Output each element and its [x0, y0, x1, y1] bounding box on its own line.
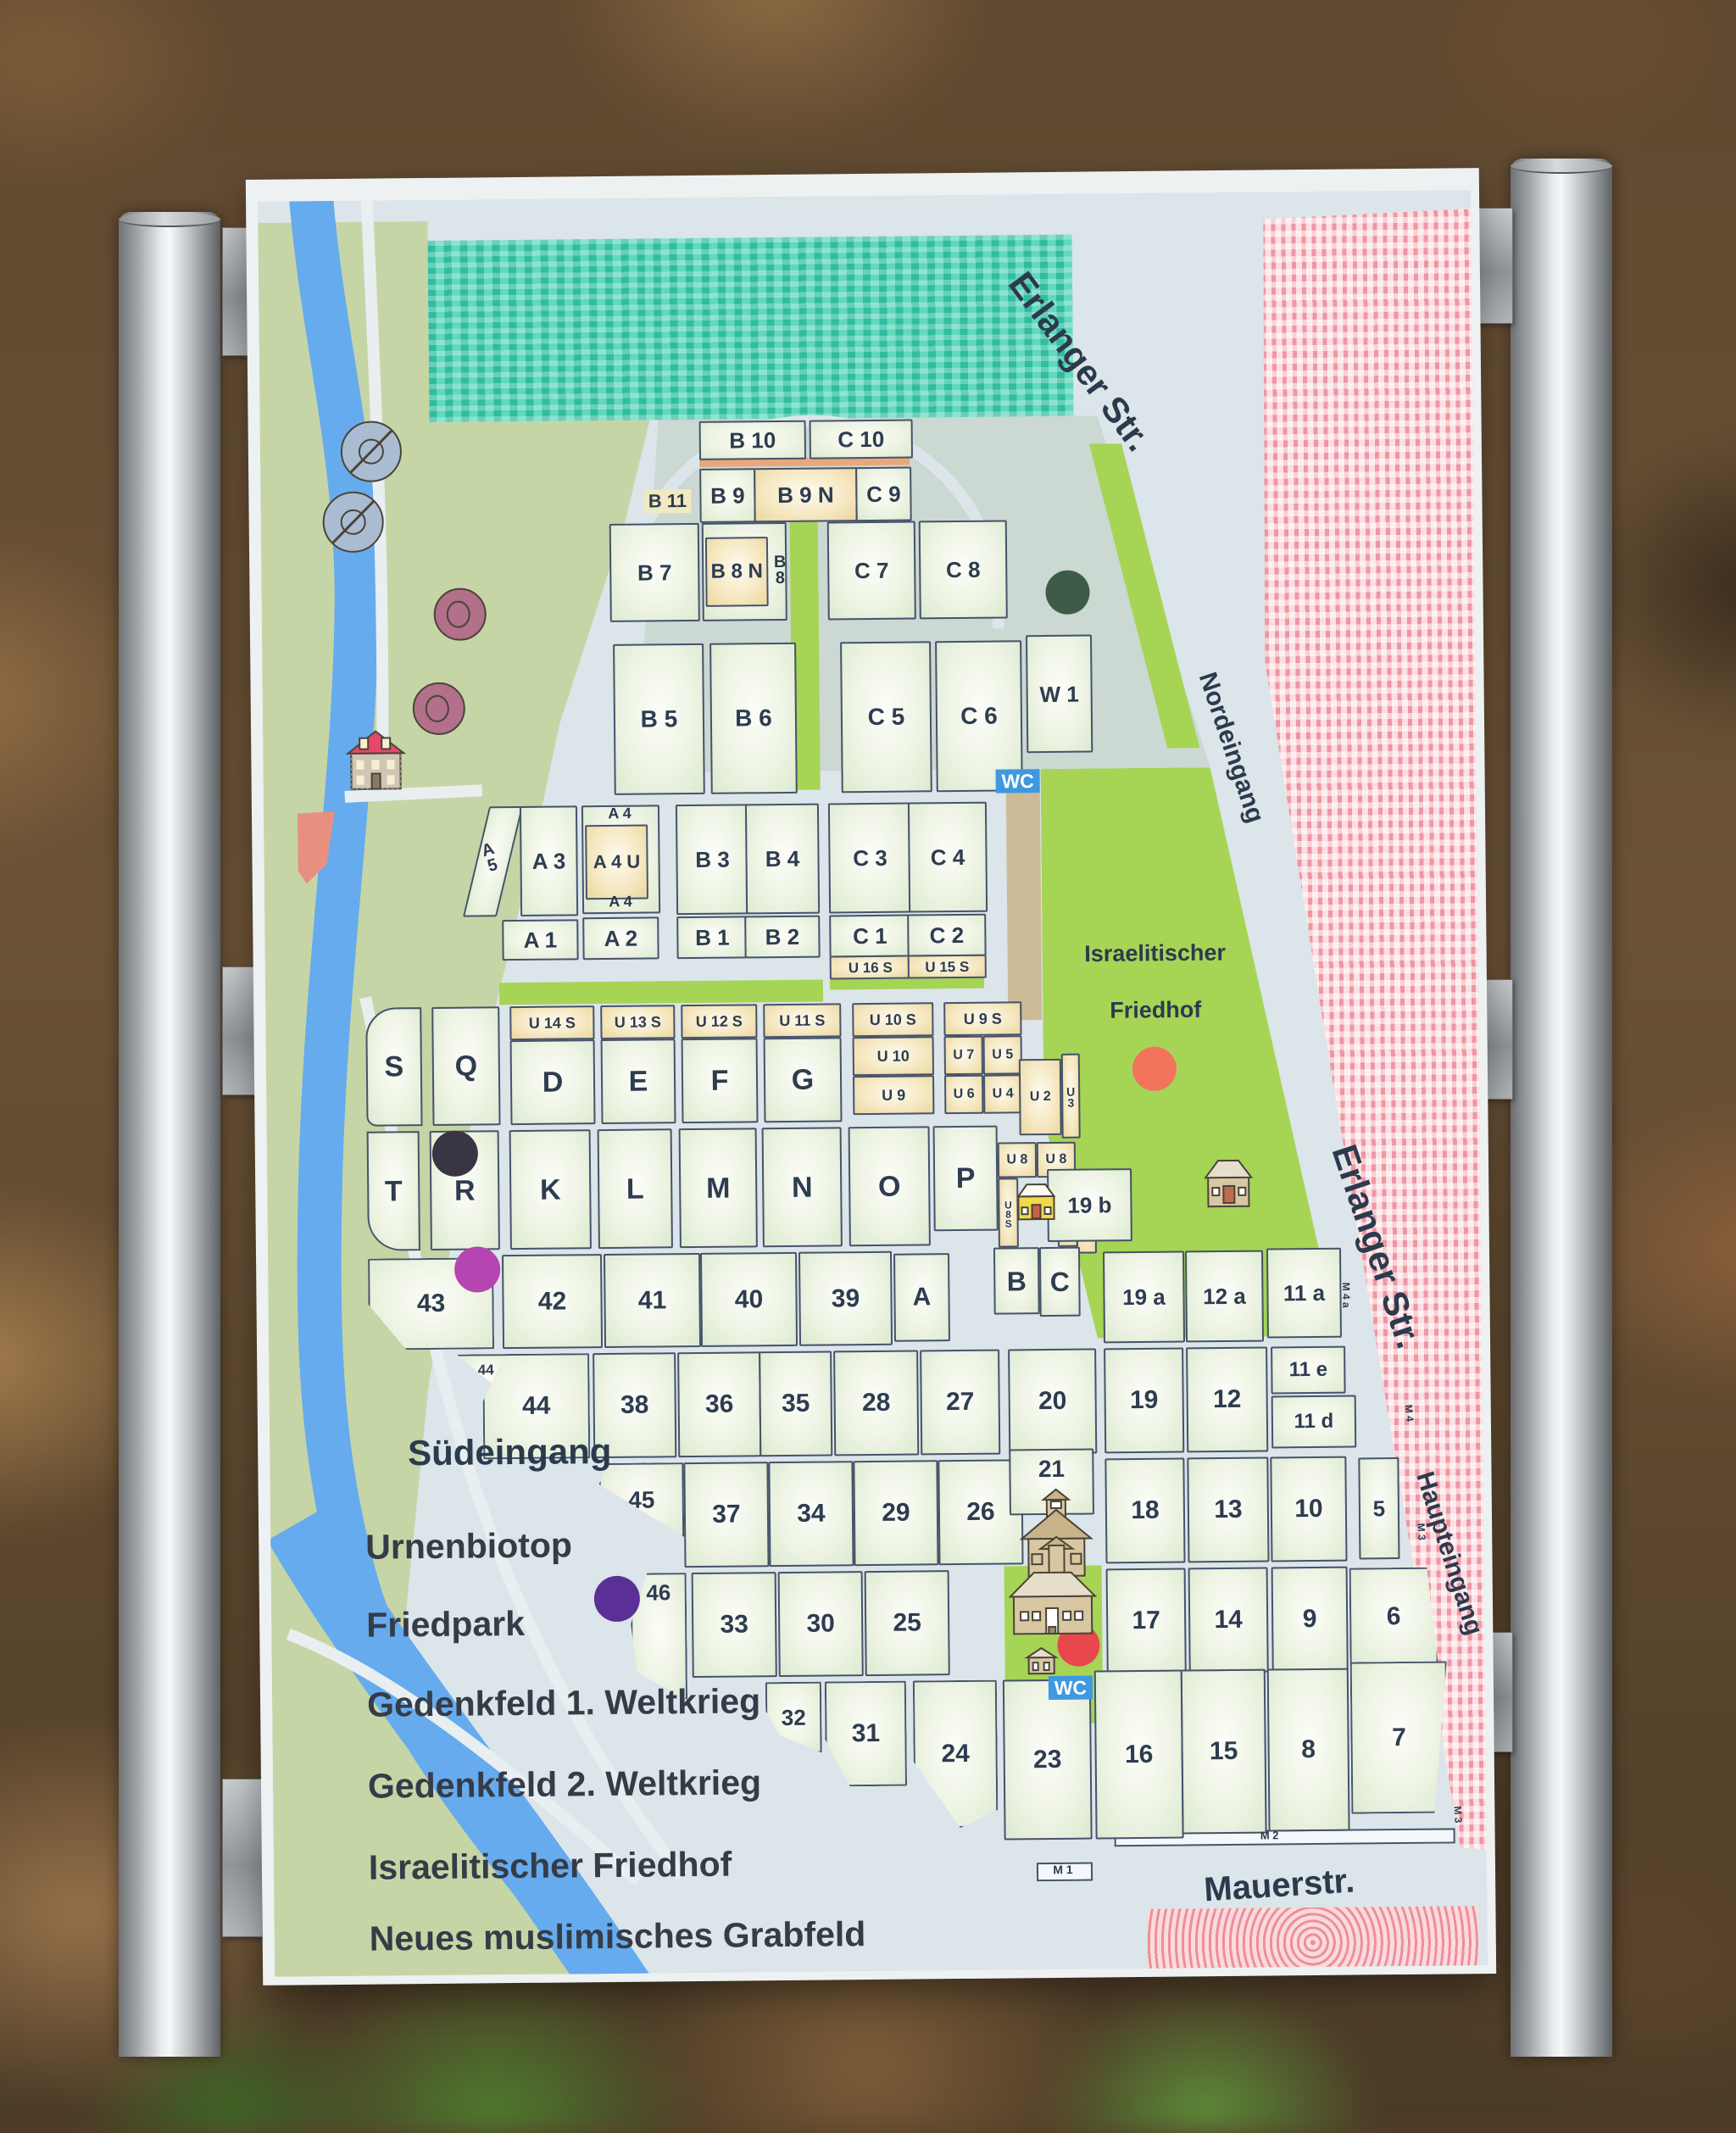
plot-label: 10	[1294, 1496, 1323, 1522]
plot-b1: B 1	[676, 916, 748, 959]
plot-label: 13	[1214, 1497, 1243, 1523]
plot-b9n: B 9 N	[754, 467, 858, 522]
muslimisches-grabfeld-dot	[594, 1576, 641, 1623]
map-small-label: B 8	[774, 554, 787, 587]
plot-label: U 9 S	[964, 1011, 1002, 1027]
plot-label: U3	[1065, 1085, 1077, 1107]
plot-label: 40	[735, 1287, 764, 1312]
left-metal-post	[119, 212, 220, 2057]
plot-37: 37	[683, 1462, 769, 1568]
map-small-label: M 2	[1260, 1830, 1279, 1841]
legend-color-dot	[304, 1914, 351, 1964]
plot-t: T	[367, 1131, 420, 1251]
plot-label: 17	[1132, 1608, 1160, 1634]
legend-label: Friedpark	[366, 1603, 525, 1645]
plot-label: B 6	[735, 706, 772, 730]
plot-label: 41	[638, 1288, 667, 1313]
map-small-label: M 4	[1403, 1404, 1414, 1422]
plot-13: 13	[1187, 1457, 1269, 1563]
plot-label: 35	[782, 1391, 810, 1417]
cemetery-map-sign: B 10C 10B 9B 9 NC 9B 11B 7B 8 NC 7C 8B 5…	[246, 168, 1496, 1985]
plot-u8s: U8S	[998, 1178, 1019, 1247]
plot-label: A 2	[604, 927, 638, 950]
plot-b2: B 2	[744, 916, 820, 959]
plot-25: 25	[865, 1570, 950, 1676]
plot-l: L	[598, 1128, 673, 1249]
plot-label: A 1	[524, 929, 558, 951]
plot-label: F	[710, 1066, 728, 1095]
israelitischer-friedhof-dot	[1132, 1047, 1177, 1091]
plot-label: 16	[1125, 1741, 1154, 1767]
plot-17: 17	[1106, 1568, 1187, 1674]
plot-label: B	[1007, 1267, 1027, 1295]
plot-label: 43	[417, 1291, 446, 1317]
plot-u10s: U 10 S	[852, 1002, 933, 1037]
plot-label: 11 a	[1283, 1282, 1325, 1304]
map-small-label: M 3	[1452, 1806, 1463, 1824]
plot-42: 42	[502, 1254, 603, 1349]
house-icon	[1204, 1157, 1254, 1209]
teal-moire-band	[428, 235, 1074, 422]
plot-8: 8	[1267, 1668, 1350, 1832]
plot-u12s: U 12 S	[681, 1004, 757, 1039]
map-small-label: M 3	[1416, 1523, 1427, 1540]
plot-n: N	[762, 1127, 843, 1247]
plot-label: 32	[782, 1707, 806, 1729]
large-house-icon	[1009, 1567, 1098, 1635]
plot-u9s: U 9 S	[943, 1001, 1021, 1036]
plot-label: 30	[806, 1611, 835, 1636]
plot-label: B 1	[695, 927, 730, 949]
legend-item-gedenkfeld-1-weltkrieg: Gedenkfeld 1. Weltkrieg	[303, 1672, 761, 1734]
plot-label: 11 d	[1294, 1412, 1333, 1432]
plot-label: A	[913, 1284, 932, 1310]
plot-b9: B 9	[699, 468, 756, 523]
plot-30: 30	[778, 1571, 864, 1677]
plot-12: 12	[1186, 1347, 1268, 1453]
footpath	[345, 790, 482, 797]
ring-circle-icon	[432, 587, 487, 642]
legend-color-dot	[304, 1843, 351, 1893]
plot-label: 12 a	[1203, 1285, 1246, 1307]
plot-b10: B 10	[699, 420, 806, 460]
plot-d: D	[510, 1039, 596, 1125]
friedpark-dot	[1045, 570, 1089, 614]
plot-16: 16	[1094, 1670, 1184, 1840]
plot-label: 7	[1392, 1724, 1406, 1750]
legend-label: Gedenkfeld 1. Weltkrieg	[367, 1681, 760, 1724]
plot-label: 8	[1301, 1737, 1316, 1763]
plot-label: C 4	[931, 846, 965, 868]
plot-b7: B 7	[609, 523, 700, 622]
plot-label: Q	[454, 1051, 477, 1080]
plot-label: B 10	[729, 429, 776, 452]
plot-label: E	[629, 1067, 648, 1096]
plot-b6: B 6	[709, 643, 798, 794]
plot-label: A 3	[532, 849, 566, 872]
plot-40: 40	[700, 1252, 798, 1347]
entrance-suedeingang: Südeingang	[408, 1431, 612, 1473]
plot-u4: U 4	[983, 1074, 1022, 1113]
plot-b5: B 5	[613, 643, 705, 795]
plot-c9: C 9	[855, 467, 912, 522]
plot-label: C 8	[946, 559, 981, 581]
legend-label: Neues muslimisches Grabfeld	[370, 1914, 866, 1959]
plot-label: U 10 S	[870, 1011, 916, 1028]
plot-label: N	[792, 1172, 813, 1201]
plot-19a: 19 a	[1103, 1250, 1185, 1343]
plot-label: 34	[797, 1501, 826, 1527]
plot-label: 19	[1130, 1388, 1159, 1413]
plot-label: U 9	[882, 1088, 905, 1103]
plot-u5: U 5	[983, 1035, 1022, 1074]
plot-a2: A 2	[582, 916, 659, 960]
plot-41: 41	[604, 1253, 701, 1348]
plot-label: U8S	[1003, 1199, 1013, 1227]
plot-label: U 15 S	[925, 959, 969, 973]
plot-label: 26	[966, 1500, 995, 1525]
plot-u13s: U 13 S	[600, 1005, 675, 1039]
plot-18: 18	[1104, 1457, 1185, 1563]
plot-33: 33	[692, 1572, 777, 1678]
legend-item-neues-muslimisches-grabfeld: Neues muslimisches Grabfeld	[304, 1905, 865, 1968]
plot-label: B 9	[710, 484, 745, 506]
plot-g: G	[764, 1037, 843, 1122]
plot-label: B 5	[641, 707, 678, 731]
plot-label: 29	[882, 1501, 910, 1526]
plot-label: 36	[705, 1392, 734, 1417]
map-small-label: A 4	[609, 894, 632, 909]
plot-u14s: U 14 S	[509, 1005, 594, 1040]
urnenkolumbarium-icon	[1016, 1183, 1055, 1220]
plot-u3: U3	[1061, 1054, 1081, 1139]
post-clamp	[222, 1779, 263, 1937]
plot-s: S	[365, 1007, 422, 1127]
legend-label: Urnenbiotop	[365, 1525, 572, 1567]
plot-20: 20	[1008, 1348, 1097, 1454]
plot-b8n: B 8 N	[705, 537, 769, 607]
plot-c3: C 3	[828, 803, 912, 914]
legend-color-dot	[302, 1601, 348, 1651]
plot-o: O	[849, 1126, 931, 1246]
plot-label: U 16 S	[849, 960, 893, 974]
plot-label: B 9 N	[777, 483, 834, 506]
plot-a: A	[893, 1253, 950, 1342]
plot-label: 18	[1131, 1498, 1160, 1523]
plot-c7: C 7	[827, 521, 916, 620]
plot-label: R	[454, 1176, 476, 1205]
plot-label: C	[1050, 1268, 1070, 1295]
plot-f: F	[682, 1038, 759, 1123]
plot-label: U 7	[953, 1049, 974, 1062]
plot-u16s: U 16 S	[830, 955, 911, 980]
plot-label: U 5	[992, 1048, 1013, 1061]
plot-label: M	[706, 1173, 731, 1202]
plot-label: 15	[1210, 1739, 1238, 1764]
plot-35: 35	[759, 1351, 832, 1456]
map-small-label: M 1	[1053, 1864, 1072, 1876]
plot-label: 28	[862, 1390, 891, 1416]
plot-label: U 2	[1030, 1090, 1051, 1104]
plot-e: E	[601, 1039, 676, 1124]
plot-label: D	[542, 1067, 564, 1096]
plot-c1: C 1	[829, 915, 910, 958]
legend-label: Gedenkfeld 2. Weltkrieg	[368, 1763, 761, 1806]
plot-label: A 4 U	[593, 853, 641, 872]
plot-11a: 11 a	[1266, 1248, 1342, 1339]
plot-w1: W 1	[1026, 634, 1093, 753]
plot-c4: C 4	[908, 802, 988, 913]
plot-q: Q	[431, 1006, 500, 1126]
plot-label: L	[626, 1174, 644, 1203]
ring-circle-icon	[412, 682, 467, 737]
plot-label: 25	[893, 1610, 921, 1635]
plot-12a: 12 a	[1185, 1250, 1264, 1343]
plot-u8: U 8	[998, 1142, 1037, 1178]
plot-label: 12	[1213, 1387, 1242, 1412]
plot-36: 36	[677, 1351, 761, 1457]
plot-c: C	[1039, 1247, 1081, 1317]
plot-u9: U 9	[853, 1075, 934, 1115]
plot-label: O	[878, 1172, 901, 1200]
plot-10: 10	[1270, 1456, 1347, 1562]
plot-u15s: U 15 S	[908, 955, 987, 979]
plot-label: 5	[1373, 1497, 1386, 1519]
chapel-icon	[1018, 1489, 1095, 1578]
red-roof-house-icon	[346, 727, 406, 791]
plot-11e: 11 e	[1271, 1346, 1346, 1395]
plot-6: 6	[1349, 1568, 1438, 1667]
wc-label: WC	[996, 769, 1040, 793]
plot-u7: U 7	[944, 1036, 983, 1075]
plot-label: C 6	[960, 705, 998, 728]
plot-34: 34	[768, 1461, 854, 1567]
pink-moire-bottom	[1147, 1906, 1478, 1977]
plot-label: U 8	[1045, 1153, 1066, 1167]
plot-label: 14	[1214, 1607, 1243, 1633]
plot-19b: 19 b	[1047, 1168, 1132, 1242]
plot-label: P	[956, 1164, 976, 1193]
plot-label: C 2	[930, 924, 965, 946]
plot-11d: 11 d	[1271, 1395, 1357, 1449]
plot-label: U 6	[954, 1088, 975, 1101]
plot-27: 27	[920, 1350, 1000, 1456]
plot-label: 6	[1387, 1604, 1401, 1629]
plot-label: 11 e	[1289, 1360, 1328, 1380]
plot-14: 14	[1188, 1568, 1269, 1674]
plot-label: 38	[620, 1393, 649, 1418]
plot-k: K	[509, 1129, 592, 1250]
legend-item-gedenkfeld-2-weltkrieg: Gedenkfeld 2. Weltkrieg	[303, 1753, 762, 1815]
plot-label: B 4	[765, 848, 800, 870]
plot-label: 33	[720, 1612, 748, 1637]
area-israelitischer-friedhof-line1: Israelitischer	[1084, 939, 1226, 967]
plot-label: B 7	[637, 561, 672, 583]
plot-label: 23	[1033, 1746, 1062, 1772]
green-strip-a-row	[499, 980, 823, 1005]
plot-label: 44	[522, 1394, 551, 1419]
plot-p: P	[933, 1126, 999, 1232]
right-metal-post	[1511, 159, 1612, 2057]
plot-label: U 12 S	[696, 1013, 743, 1029]
plot-label: 31	[852, 1721, 881, 1746]
legend-item-friedpark: Friedpark	[302, 1595, 525, 1655]
plot-b4: B 4	[745, 804, 820, 915]
plot-label: B 3	[695, 849, 730, 871]
plot-label: 9	[1303, 1607, 1317, 1632]
plot-c2: C 2	[907, 914, 986, 957]
plot-label: G	[792, 1066, 815, 1094]
area-israelitischer-friedhof-line2: Friedhof	[1110, 997, 1201, 1024]
map-small-label: M 4 a	[1341, 1283, 1351, 1308]
wc-label: WC	[1049, 1676, 1093, 1700]
marker-circle-icon	[340, 420, 403, 483]
plot-u6: U 6	[944, 1075, 983, 1114]
cemetery-map: B 10C 10B 9B 9 NC 9B 11B 7B 8 NC 7C 8B 5…	[258, 190, 1488, 1977]
plot-a3: A 3	[520, 805, 578, 916]
plot-9: 9	[1271, 1567, 1349, 1673]
plot-m: M	[679, 1128, 758, 1248]
plot-15: 15	[1181, 1669, 1267, 1835]
legend-item-israelitischer-friedhof: Israelitischer Friedhof	[304, 1835, 732, 1897]
plot-19: 19	[1104, 1347, 1184, 1453]
legend-color-dot	[301, 1523, 348, 1573]
plot-label: 21	[1038, 1457, 1065, 1481]
plot-a4u: A 4 U	[585, 825, 648, 900]
legend-label: Israelitischer Friedhof	[369, 1844, 732, 1887]
plot-u11s: U 11 S	[763, 1003, 841, 1038]
plot-label: 24	[941, 1741, 970, 1767]
plot-label: 27	[946, 1390, 975, 1415]
plot-label: W 1	[1039, 682, 1078, 705]
tan-strip	[1006, 793, 1043, 1020]
plot-label: C 5	[867, 705, 904, 729]
plot-23: 23	[1003, 1679, 1093, 1841]
plot-5: 5	[1358, 1457, 1399, 1559]
plot-c10: C 10	[810, 419, 913, 459]
plot-28: 28	[833, 1350, 919, 1456]
legend-color-dot	[303, 1762, 350, 1812]
plot-label: T	[385, 1177, 403, 1206]
plot-label: U 13 S	[615, 1014, 661, 1030]
plot-label: K	[540, 1175, 561, 1204]
plot-label: S	[384, 1052, 403, 1081]
plot-label: U 11 S	[779, 1013, 825, 1029]
plot-7: 7	[1350, 1662, 1449, 1814]
plot-39: 39	[798, 1251, 893, 1346]
plot-u10: U 10	[853, 1036, 934, 1076]
plot-label: C 3	[853, 847, 887, 869]
plot-label: 37	[712, 1502, 741, 1528]
salmon-wedge	[298, 811, 341, 883]
plot-a1: A 1	[502, 919, 578, 961]
plot-label: 19 a	[1122, 1286, 1166, 1308]
plot-label: C 1	[853, 925, 887, 947]
plot-b: B	[993, 1247, 1040, 1315]
plot-label: U 4	[993, 1087, 1014, 1100]
plot-label: U 10	[877, 1049, 910, 1064]
plot-label: U 8	[1006, 1153, 1027, 1167]
map-small-label: A 4	[608, 806, 632, 821]
plot-label: C 10	[837, 428, 884, 451]
plot-label: C 9	[866, 483, 901, 505]
plot-b3: B 3	[676, 804, 749, 915]
plot-u2: U 2	[1019, 1059, 1062, 1135]
marker-circle-icon	[321, 490, 385, 554]
plot-label: B 2	[765, 926, 800, 948]
plot-label: 42	[538, 1289, 567, 1314]
plot-label: B 8 N	[710, 561, 763, 582]
plot-label: 39	[832, 1286, 860, 1312]
plot-29: 29	[853, 1460, 938, 1566]
gedenkfeld-1-weltkrieg-dot	[454, 1246, 501, 1293]
small-house-icon	[1027, 1647, 1055, 1674]
plot-label: 20	[1038, 1389, 1067, 1414]
legend-color-dot	[303, 1680, 349, 1730]
gedenkfeld-2-weltkrieg-dot	[432, 1130, 479, 1177]
plot-label: C 7	[854, 560, 889, 582]
plot-b11: B 11	[643, 489, 691, 514]
plot-label: B 11	[648, 492, 687, 510]
green-strip-c-row	[830, 978, 984, 990]
plot-label: 46	[646, 1581, 670, 1603]
plot-label: 19 b	[1067, 1194, 1111, 1216]
plot-c5: C 5	[840, 641, 932, 793]
plot-c8: C 8	[919, 520, 1008, 619]
plot-label: U 14 S	[529, 1015, 576, 1031]
legend-item-urnenbiotop: Urnenbiotop	[301, 1516, 572, 1576]
